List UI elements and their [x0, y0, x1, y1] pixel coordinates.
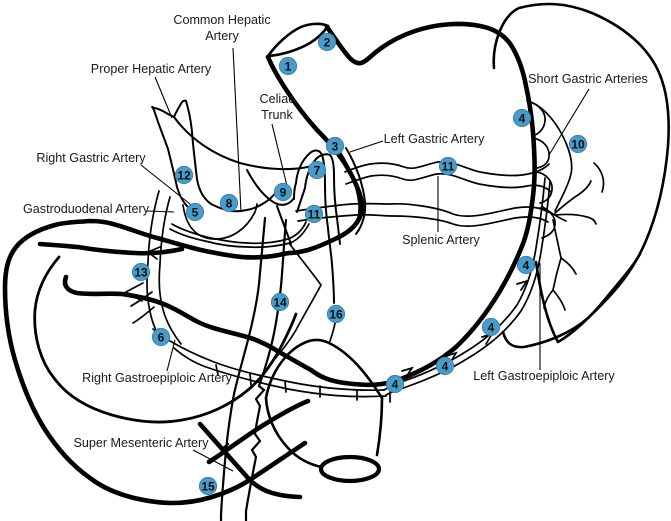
svg-text:3: 3 [332, 139, 339, 153]
svg-text:5: 5 [192, 205, 199, 219]
svg-text:2: 2 [324, 35, 331, 49]
svg-text:Splenic Artery: Splenic Artery [402, 233, 480, 247]
svg-text:12: 12 [177, 168, 191, 182]
svg-text:10: 10 [571, 137, 585, 151]
svg-text:6: 6 [158, 330, 165, 344]
svg-text:4: 4 [523, 258, 530, 272]
svg-text:1: 1 [285, 59, 292, 73]
svg-text:Artery: Artery [205, 29, 239, 43]
svg-text:Short Gastric Arteries: Short Gastric Arteries [528, 72, 648, 86]
svg-text:14: 14 [273, 295, 287, 309]
svg-text:7: 7 [314, 163, 321, 177]
svg-text:Left Gastric Artery: Left Gastric Artery [384, 132, 485, 146]
svg-text:Super Mesenteric Artery: Super Mesenteric Artery [73, 436, 209, 450]
svg-text:Trunk: Trunk [261, 108, 293, 122]
svg-text:11: 11 [308, 207, 321, 221]
svg-text:Right Gastric Artery: Right Gastric Artery [36, 151, 146, 165]
svg-text:16: 16 [329, 307, 343, 321]
svg-text:4: 4 [488, 320, 495, 334]
svg-text:Celiac: Celiac [260, 92, 295, 106]
svg-text:15: 15 [201, 479, 215, 493]
svg-text:Gastroduodenal Artery: Gastroduodenal Artery [23, 202, 150, 216]
svg-text:4: 4 [442, 359, 449, 373]
svg-text:4: 4 [519, 111, 526, 125]
svg-text:9: 9 [280, 185, 287, 199]
svg-text:Proper Hepatic Artery: Proper Hepatic Artery [91, 62, 212, 76]
svg-text:11: 11 [442, 159, 455, 173]
svg-text:Right Gastroepiploic Artery: Right Gastroepiploic Artery [82, 371, 232, 385]
svg-text:4: 4 [392, 377, 399, 391]
svg-text:Left Gastroepiploic Artery: Left Gastroepiploic Artery [473, 369, 615, 383]
svg-text:Common Hepatic: Common Hepatic [173, 13, 270, 27]
svg-text:13: 13 [134, 265, 148, 279]
svg-text:8: 8 [226, 196, 233, 210]
